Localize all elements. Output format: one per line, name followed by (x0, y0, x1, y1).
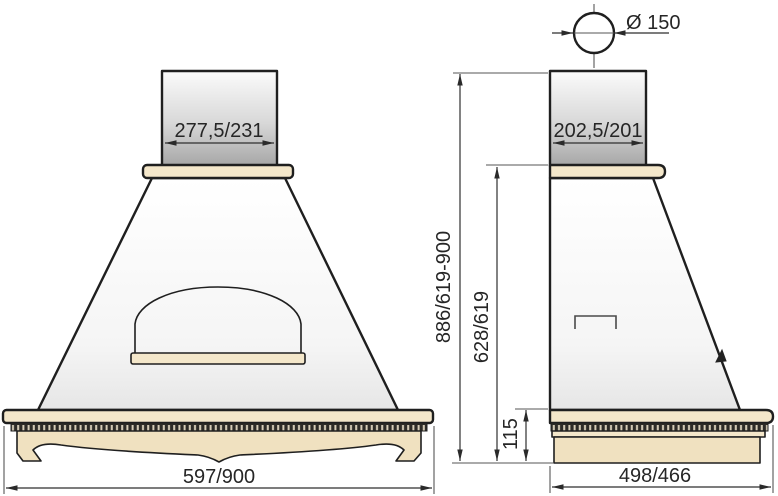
side-base-board (550, 410, 773, 423)
side-base-apron (554, 437, 760, 463)
body-height-label: 628/619 (471, 291, 493, 363)
front-chimney (162, 71, 277, 166)
duct-diameter-label: Ø 150 (626, 12, 680, 34)
side-view: Ø 150 886/619-900 628/619 (433, 4, 773, 493)
front-base-apron (17, 431, 421, 462)
chimney-depth-dimension: 202,5/201 (553, 120, 643, 143)
front-hood-body (38, 178, 398, 410)
front-dentil-molding (11, 423, 427, 431)
front-view: 277,5/231 597/900 (3, 71, 434, 494)
side-chimney (550, 71, 646, 166)
front-chimney-width-label: 277,5/231 (175, 120, 264, 142)
front-mantel-board (143, 165, 293, 178)
side-dentil-molding (551, 423, 768, 431)
body-height-dimension: 628/619 (471, 165, 548, 461)
front-chimney-width-dimension: 277,5/231 (165, 120, 274, 143)
side-base-cornice (552, 431, 765, 437)
base-height-dimension: 115 (500, 409, 548, 461)
base-height-label: 115 (500, 418, 522, 450)
side-hood-body (550, 178, 740, 410)
front-base-width-label: 597/900 (183, 466, 255, 488)
drawing-canvas: 277,5/231 597/900 Ø 150 (0, 0, 778, 496)
total-height-dimension: 886/619-900 (433, 73, 553, 463)
base-depth-label: 498/466 (619, 465, 691, 487)
front-base-board (3, 410, 433, 423)
chimney-depth-label: 202,5/201 (554, 120, 643, 142)
duct-diameter-dimension: Ø 150 (552, 12, 680, 34)
hood-dimension-drawing: 277,5/231 597/900 Ø 150 (0, 0, 778, 496)
side-mantel-board (550, 165, 665, 178)
front-arch-shelf (131, 353, 305, 364)
total-height-label: 886/619-900 (433, 231, 455, 343)
